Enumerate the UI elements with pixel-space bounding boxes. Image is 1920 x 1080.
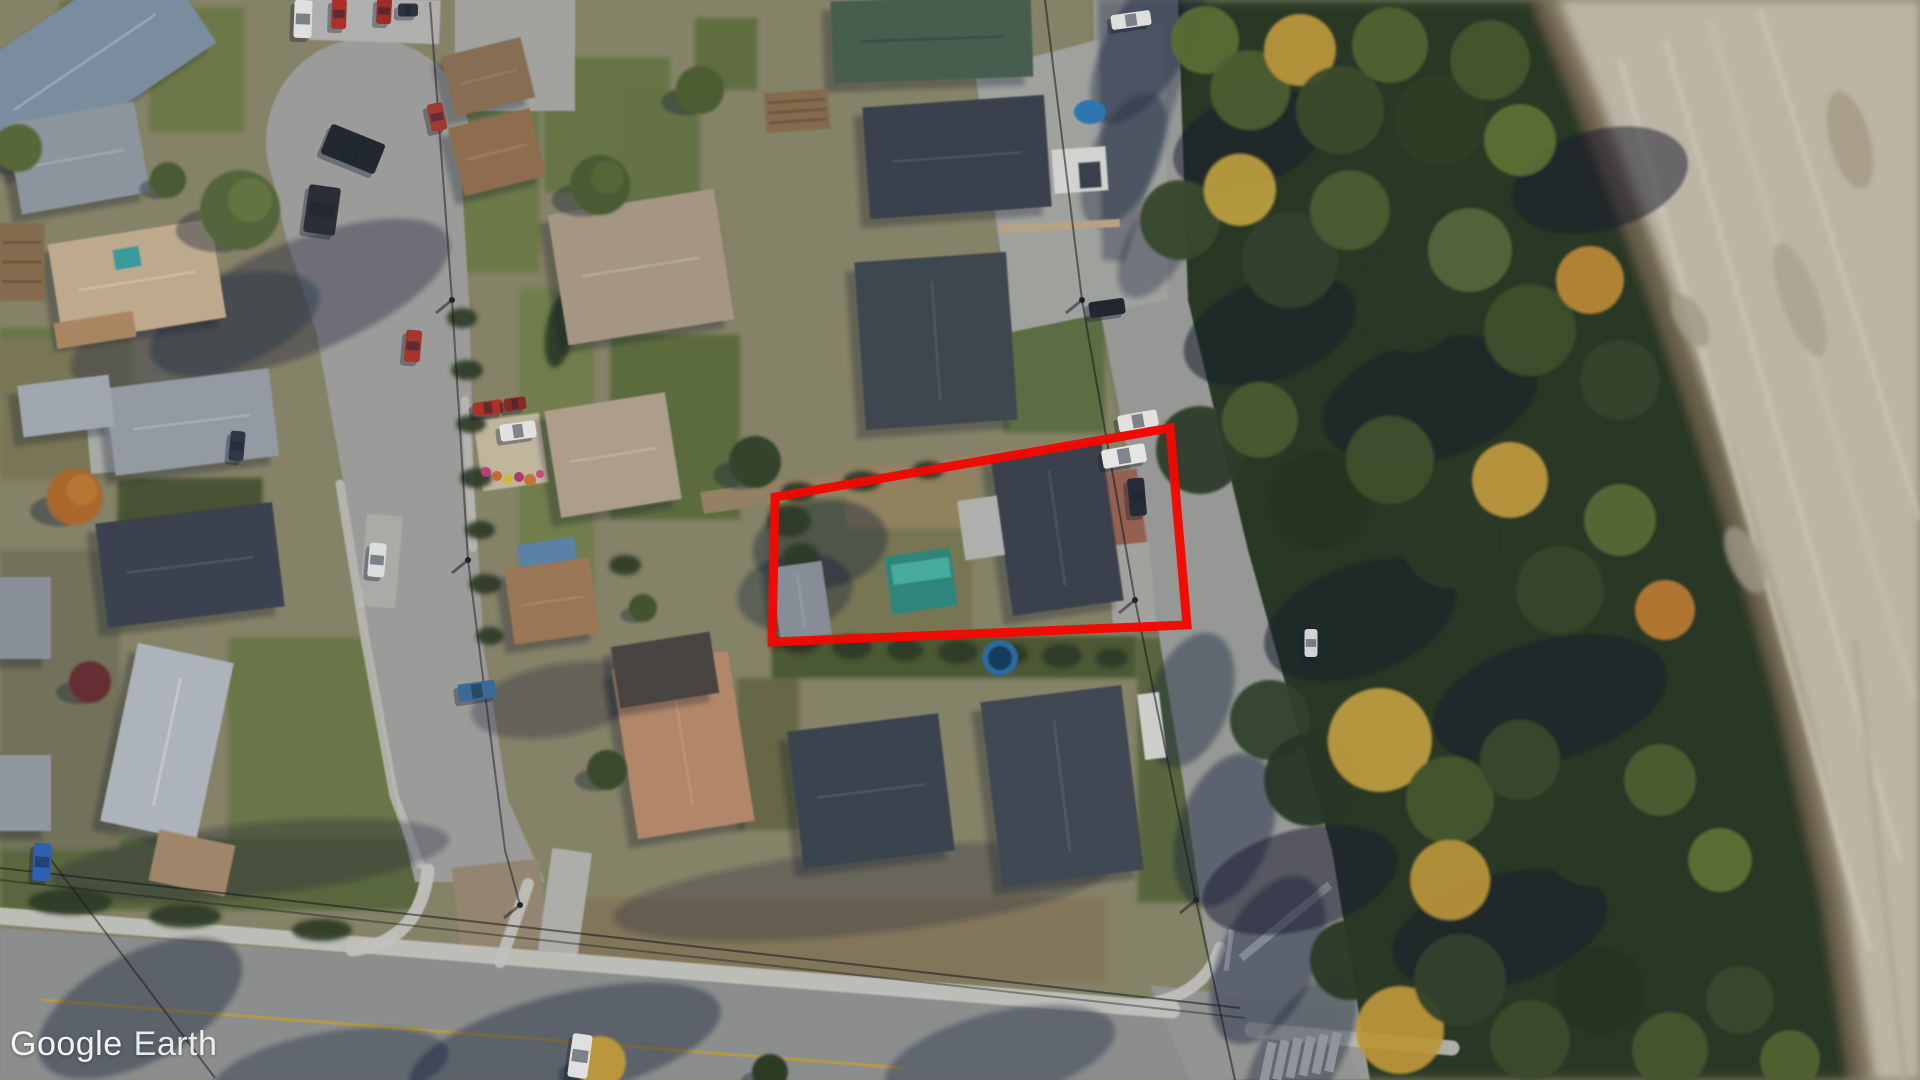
watermark-google: Google [10,1025,123,1063]
google-earth-watermark: GoogleEarth [10,1025,217,1064]
google-earth-viewport: GoogleEarth [0,0,1920,1080]
photo-tint [0,0,1920,1080]
color-grade [0,0,1920,1080]
satellite-canvas[interactable] [0,0,1920,1080]
watermark-earth: Earth [134,1025,218,1063]
